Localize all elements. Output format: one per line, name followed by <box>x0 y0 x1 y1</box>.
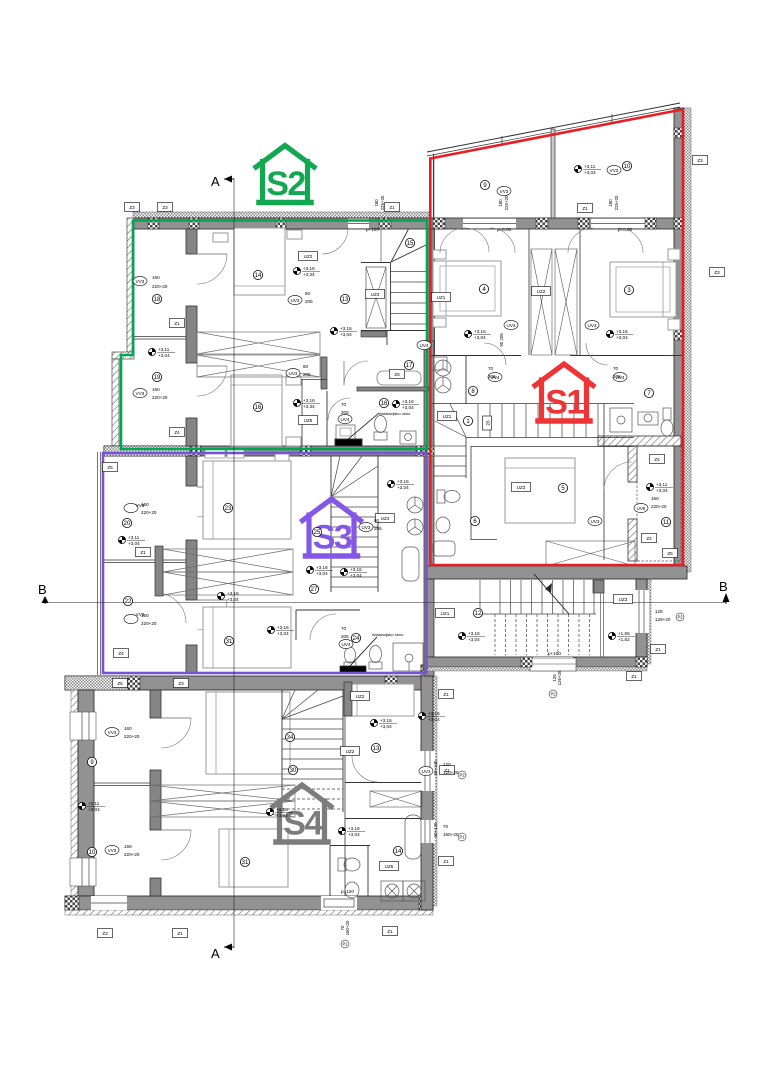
svg-text:160+20: 160+20 <box>345 920 350 935</box>
svg-text:A: A <box>211 946 220 961</box>
svg-text:Z5: Z5 <box>107 465 113 470</box>
svg-text:70: 70 <box>443 824 449 829</box>
svg-text:VV3: VV3 <box>136 391 145 396</box>
svg-text:UZ1: UZ1 <box>437 295 446 300</box>
svg-text:p+100: p+100 <box>366 227 379 232</box>
svg-text:UV3: UV3 <box>591 519 600 524</box>
svg-text:Z3: Z3 <box>697 158 703 163</box>
svg-text:27: 27 <box>311 587 318 593</box>
svg-text:220+20: 220+20 <box>141 621 157 626</box>
svg-text:205: 205 <box>341 634 349 639</box>
svg-text:+3,04: +3,04 <box>158 353 170 358</box>
svg-text:34: 34 <box>287 735 294 741</box>
svg-text:p=120: p=120 <box>341 889 354 894</box>
svg-text:60+140: 60+140 <box>433 760 438 775</box>
svg-text:160: 160 <box>651 496 659 501</box>
svg-text:+3,04: +3,04 <box>616 335 628 340</box>
svg-text:Z1: Z1 <box>177 931 183 936</box>
svg-text:B: B <box>719 579 728 594</box>
svg-text:UV4: UV4 <box>341 417 350 422</box>
svg-text:UV3: UV3 <box>362 525 371 530</box>
svg-text:18: 18 <box>154 297 161 303</box>
svg-text:225+20: 225+20 <box>614 195 619 210</box>
svg-text:+3,16: +3,16 <box>380 718 392 723</box>
svg-text:UZ1: UZ1 <box>443 414 452 419</box>
svg-text:UZ3: UZ3 <box>619 597 628 602</box>
svg-text:220+20: 220+20 <box>124 852 140 857</box>
svg-text:25: 25 <box>314 530 321 536</box>
svg-text:UZ2: UZ2 <box>346 749 355 754</box>
svg-text:Z1: Z1 <box>655 647 661 652</box>
svg-text:+3,16: +3,16 <box>397 479 409 484</box>
svg-text:UZ2: UZ2 <box>537 289 546 294</box>
svg-text:UZ5: UZ5 <box>304 418 313 423</box>
svg-text:70: 70 <box>341 626 347 631</box>
svg-text:14: 14 <box>255 273 262 279</box>
svg-text:205: 205 <box>488 374 496 379</box>
svg-text:+3,04: +3,04 <box>88 807 100 812</box>
svg-text:S4: S4 <box>283 805 323 843</box>
svg-text:P2: P2 <box>459 773 465 778</box>
svg-text:+3,04: +3,04 <box>128 541 140 546</box>
svg-text:Z3: Z3 <box>162 205 168 210</box>
svg-text:60: 60 <box>303 364 309 369</box>
svg-text:UZ3: UZ3 <box>517 485 526 490</box>
svg-text:UV3: UV3 <box>588 323 597 328</box>
svg-text:Z4: Z4 <box>174 430 180 435</box>
svg-text:VV3: VV3 <box>136 279 145 284</box>
svg-text:+3,04: +3,04 <box>468 637 480 642</box>
svg-text:+3,16: +3,16 <box>303 266 315 271</box>
svg-text:p=0,00: p=0,00 <box>618 227 633 232</box>
svg-text:+3,11: +3,11 <box>584 164 596 169</box>
svg-text:+3,04: +3,04 <box>474 335 486 340</box>
svg-text:+3,16: +3,16 <box>468 631 480 636</box>
svg-text:220+20: 220+20 <box>651 504 667 509</box>
svg-text:160: 160 <box>152 387 160 392</box>
svg-text:S2: S2 <box>266 165 305 203</box>
svg-text:180: 180 <box>498 199 503 207</box>
svg-text:20: 20 <box>124 521 131 527</box>
svg-text:205: 205 <box>305 299 313 304</box>
svg-text:13: 13 <box>373 746 380 752</box>
svg-text:Z3: Z3 <box>102 931 108 936</box>
svg-text:220+20: 220+20 <box>141 510 157 515</box>
svg-text:70: 70 <box>488 366 494 371</box>
svg-text:instalacijsko okno: instalacijsko okno <box>379 411 411 416</box>
svg-text:instalacijsko okno: instalacijsko okno <box>372 632 404 637</box>
svg-text:10: 10 <box>624 164 631 170</box>
svg-text:Z4: Z4 <box>654 457 660 462</box>
svg-text:19: 19 <box>154 375 161 381</box>
svg-text:UZ3: UZ3 <box>371 292 380 297</box>
svg-text:+3,16: +3,16 <box>348 826 360 831</box>
svg-text:UV3: UV3 <box>291 298 300 303</box>
svg-text:12: 12 <box>475 611 482 617</box>
svg-text:225+20: 225+20 <box>504 195 509 210</box>
svg-text:Z4: Z4 <box>118 651 124 656</box>
svg-text:UV3: UV3 <box>507 323 516 328</box>
svg-text:24: 24 <box>353 636 360 642</box>
svg-text:+3,04: +3,04 <box>380 724 392 729</box>
svg-text:UZ1: UZ1 <box>441 611 450 616</box>
svg-text:120: 120 <box>443 762 451 767</box>
svg-text:Z4: Z4 <box>646 536 652 541</box>
svg-text:+3,16: +3,16 <box>277 625 289 630</box>
svg-text:220+20: 220+20 <box>152 395 168 400</box>
svg-text:16: 16 <box>381 401 388 407</box>
svg-text:120+20: 120+20 <box>443 770 459 775</box>
svg-text:205: 205 <box>341 410 349 415</box>
svg-text:205: 205 <box>374 526 382 531</box>
svg-text:160+20: 160+20 <box>443 832 459 837</box>
svg-text:Z6: Z6 <box>485 420 490 426</box>
svg-text:+3,16: +3,16 <box>316 565 328 570</box>
svg-text:+3,16: +3,16 <box>402 399 414 404</box>
svg-text:UZ2: UZ2 <box>356 694 365 699</box>
svg-text:160: 160 <box>141 613 149 618</box>
svg-text:Z5: Z5 <box>667 551 673 556</box>
svg-text:60: 60 <box>374 518 380 523</box>
svg-text:13: 13 <box>342 297 349 303</box>
svg-text:+3,04: +3,04 <box>276 813 288 818</box>
svg-text:180: 180 <box>374 199 379 207</box>
svg-text:S3: S3 <box>313 519 352 557</box>
svg-text:14: 14 <box>395 849 402 855</box>
svg-text:S1: S1 <box>545 384 584 422</box>
svg-text:+3,04: +3,04 <box>340 332 352 337</box>
svg-text:VV3: VV3 <box>610 168 619 173</box>
svg-text:205: 205 <box>303 372 311 377</box>
svg-text:P2: P2 <box>550 692 556 697</box>
svg-text:p=0,00: p=0,00 <box>497 227 512 232</box>
svg-text:Z6: Z6 <box>394 372 400 377</box>
svg-text:180: 180 <box>608 199 613 207</box>
svg-text:160: 160 <box>124 844 132 849</box>
svg-text:11: 11 <box>663 520 670 526</box>
svg-text:P1: P1 <box>342 942 348 947</box>
svg-text:P1: P1 <box>459 835 465 840</box>
svg-text:60: 60 <box>305 291 311 296</box>
svg-text:Z3: Z3 <box>714 270 720 275</box>
svg-text:22: 22 <box>125 599 132 605</box>
svg-text:+3,11: +3,11 <box>128 535 140 540</box>
svg-text:UV4: UV4 <box>420 343 429 348</box>
svg-text:205: 205 <box>613 374 621 379</box>
svg-text:31: 31 <box>226 639 233 645</box>
svg-text:+1,82: +1,82 <box>618 637 630 642</box>
svg-text:+3,04: +3,04 <box>428 717 440 722</box>
svg-text:Z3: Z3 <box>129 205 135 210</box>
svg-text:+1,65: +1,65 <box>618 631 630 636</box>
svg-text:31: 31 <box>242 860 249 866</box>
svg-text:16: 16 <box>255 405 262 411</box>
svg-text:UV5: UV5 <box>637 506 646 511</box>
svg-text:60+120: 60+120 <box>433 822 438 837</box>
svg-text:VV3: VV3 <box>108 730 117 735</box>
svg-text:UZ2: UZ2 <box>304 254 313 259</box>
svg-text:90 205: 90 205 <box>499 333 504 347</box>
svg-text:UV3: UV3 <box>422 769 431 774</box>
svg-text:+3,16: +3,16 <box>276 807 288 812</box>
svg-text:+3,04: +3,04 <box>227 597 239 602</box>
svg-text:Z1: Z1 <box>443 859 449 864</box>
svg-text:15: 15 <box>407 241 414 247</box>
svg-text:Z5: Z5 <box>117 681 123 686</box>
svg-text:Z1: Z1 <box>174 321 180 326</box>
svg-text:P2: P2 <box>677 615 683 620</box>
svg-text:+3,16: +3,16 <box>340 326 352 331</box>
svg-text:225+20: 225+20 <box>380 195 385 210</box>
svg-text:+3,16: +3,16 <box>303 398 315 403</box>
svg-text:70: 70 <box>613 366 619 371</box>
svg-text:Z1: Z1 <box>387 929 393 934</box>
svg-text:126+26: 126+26 <box>557 670 562 685</box>
svg-text:220+20: 220+20 <box>152 284 168 289</box>
svg-text:+3,04: +3,04 <box>584 170 596 175</box>
svg-text:Z1: Z1 <box>582 206 588 211</box>
svg-text:+3,04: +3,04 <box>348 832 360 837</box>
svg-text:128+20: 128+20 <box>655 617 671 622</box>
svg-text:+3,11: +3,11 <box>158 347 170 352</box>
svg-text:+3,11: +3,11 <box>88 801 100 806</box>
svg-text:+3,04: +3,04 <box>397 485 409 490</box>
svg-text:Z1: Z1 <box>140 550 146 555</box>
svg-text:+3,04: +3,04 <box>350 573 362 578</box>
svg-text:+3,16: +3,16 <box>350 567 362 572</box>
svg-text:160: 160 <box>152 275 160 280</box>
svg-text:128: 128 <box>655 609 663 614</box>
svg-text:70: 70 <box>341 402 347 407</box>
svg-text:23: 23 <box>225 506 232 512</box>
svg-text:+3,16: +3,16 <box>474 329 486 334</box>
svg-text:+3,16: +3,16 <box>616 329 628 334</box>
svg-text:160: 160 <box>124 726 132 731</box>
svg-text:Z1: Z1 <box>443 692 449 697</box>
svg-text:p+100: p+100 <box>548 651 561 656</box>
svg-text:+3,04: +3,04 <box>656 488 668 493</box>
svg-text:Z1: Z1 <box>389 205 395 210</box>
svg-text:+3,16: +3,16 <box>428 711 440 716</box>
svg-text:UZ5: UZ5 <box>385 864 394 869</box>
svg-text:+3,34: +3,34 <box>303 404 315 409</box>
svg-text:Z3: Z3 <box>178 681 184 686</box>
svg-text:UV4: UV4 <box>342 642 351 647</box>
svg-text:+3,04: +3,04 <box>316 571 328 576</box>
svg-text:UV3: UV3 <box>289 371 298 376</box>
svg-text:Z1: Z1 <box>631 674 637 679</box>
svg-text:+3,11: +3,11 <box>656 482 668 487</box>
svg-text:220+20: 220+20 <box>124 734 140 739</box>
svg-text:160: 160 <box>141 502 149 507</box>
svg-text:VV3: VV3 <box>108 848 117 853</box>
svg-text:17: 17 <box>406 363 413 369</box>
svg-text:10: 10 <box>89 850 96 856</box>
svg-text:+3,04: +3,04 <box>402 405 414 410</box>
svg-text:A: A <box>211 174 220 189</box>
svg-text:B: B <box>38 582 47 597</box>
svg-text:+3,16: +3,16 <box>227 591 239 596</box>
svg-text:UZ4: UZ4 <box>381 516 390 521</box>
svg-text:+3,04: +3,04 <box>277 631 289 636</box>
svg-text:30: 30 <box>290 768 297 774</box>
svg-text:+3,34: +3,34 <box>303 272 315 277</box>
svg-text:VV3: VV3 <box>500 189 509 194</box>
